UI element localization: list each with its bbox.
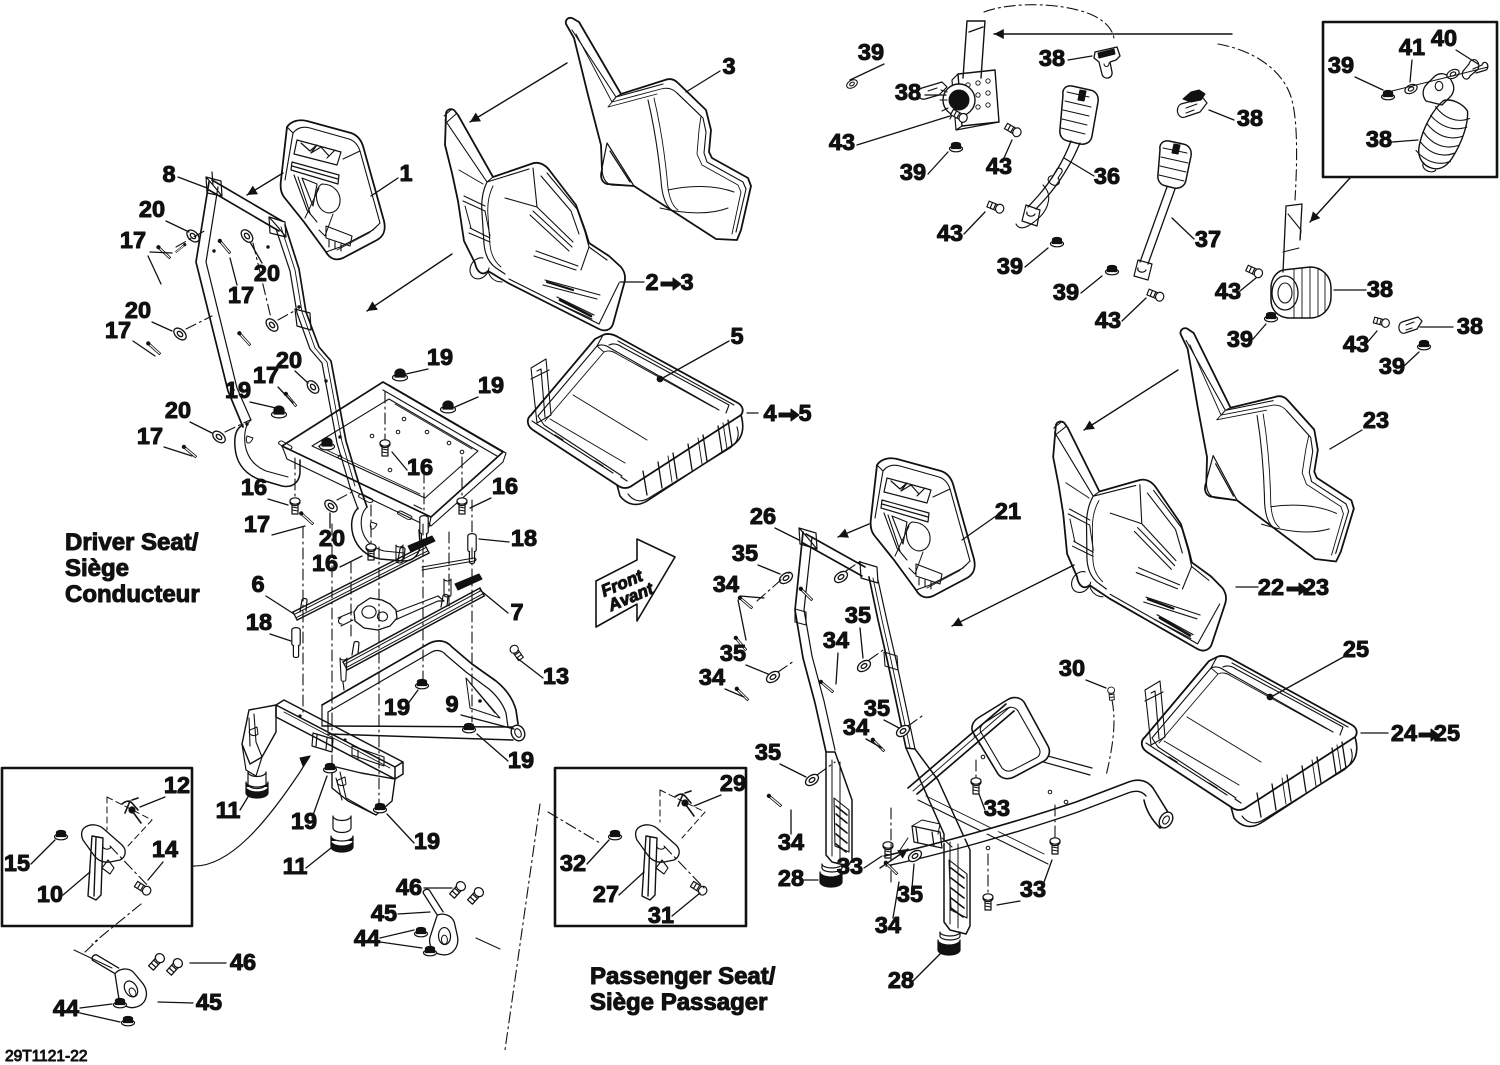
svg-text:3: 3 [680, 269, 693, 295]
svg-text:39: 39 [1328, 52, 1354, 78]
svg-text:35: 35 [755, 739, 781, 765]
svg-text:19: 19 [427, 344, 453, 370]
svg-text:32: 32 [560, 850, 586, 876]
svg-text:2: 2 [645, 269, 658, 295]
svg-text:17: 17 [228, 282, 254, 308]
svg-text:11: 11 [283, 853, 308, 879]
svg-text:17: 17 [253, 362, 279, 388]
svg-text:16: 16 [407, 454, 433, 480]
svg-text:35: 35 [845, 602, 871, 628]
svg-text:33: 33 [984, 795, 1010, 821]
svg-text:34: 34 [699, 664, 725, 690]
svg-text:45: 45 [371, 900, 397, 926]
svg-text:13: 13 [543, 663, 569, 689]
svg-text:19: 19 [414, 828, 440, 854]
svg-text:20: 20 [139, 196, 165, 222]
svg-text:44: 44 [53, 995, 79, 1021]
svg-text:20: 20 [276, 347, 302, 373]
svg-text:35: 35 [897, 881, 923, 907]
svg-text:34: 34 [713, 571, 739, 597]
svg-text:Conducteur: Conducteur [65, 581, 200, 608]
svg-text:41: 41 [1399, 34, 1425, 60]
svg-text:6: 6 [251, 571, 264, 597]
svg-text:17: 17 [244, 511, 270, 537]
svg-text:39: 39 [858, 39, 884, 65]
svg-text:37: 37 [1195, 226, 1221, 252]
svg-text:16: 16 [312, 550, 338, 576]
svg-text:1: 1 [399, 160, 412, 186]
svg-text:30: 30 [1059, 655, 1085, 681]
svg-text:43: 43 [1343, 331, 1369, 357]
svg-text:5: 5 [730, 323, 743, 349]
svg-text:38: 38 [1367, 276, 1393, 302]
svg-text:16: 16 [241, 474, 267, 500]
svg-text:27: 27 [593, 881, 619, 907]
svg-text:26: 26 [750, 503, 776, 529]
svg-text:9: 9 [445, 691, 458, 717]
svg-text:25: 25 [1434, 720, 1460, 746]
svg-text:39: 39 [900, 159, 926, 185]
svg-text:43: 43 [986, 153, 1012, 179]
svg-text:33: 33 [837, 853, 863, 879]
svg-text:38: 38 [1366, 126, 1392, 152]
svg-text:33: 33 [1020, 876, 1046, 902]
svg-text:38: 38 [1457, 313, 1483, 339]
svg-text:38: 38 [895, 79, 921, 105]
svg-text:31: 31 [648, 902, 674, 928]
svg-text:21: 21 [995, 498, 1021, 524]
svg-text:19: 19 [225, 377, 251, 403]
svg-text:18: 18 [246, 609, 272, 635]
svg-text:39: 39 [997, 253, 1023, 279]
svg-text:43: 43 [1215, 278, 1241, 304]
svg-text:16: 16 [492, 473, 518, 499]
svg-text:43: 43 [937, 220, 963, 246]
svg-text:19: 19 [384, 694, 410, 720]
svg-text:38: 38 [1237, 105, 1263, 131]
svg-text:44: 44 [354, 925, 380, 951]
svg-text:5: 5 [798, 400, 811, 426]
svg-text:39: 39 [1053, 279, 1079, 305]
svg-text:14: 14 [152, 836, 178, 862]
svg-text:34: 34 [875, 912, 901, 938]
svg-text:Driver Seat/: Driver Seat/ [65, 529, 199, 556]
svg-text:17: 17 [105, 317, 131, 343]
svg-text:24: 24 [1391, 720, 1417, 746]
svg-text:39: 39 [1227, 326, 1253, 352]
svg-text:23: 23 [1303, 574, 1329, 600]
svg-text:Passenger Seat/: Passenger Seat/ [590, 963, 776, 990]
svg-text:39: 39 [1379, 353, 1405, 379]
svg-text:45: 45 [196, 989, 222, 1015]
svg-text:29: 29 [720, 770, 746, 796]
svg-text:12: 12 [164, 772, 190, 798]
svg-text:38: 38 [1039, 45, 1065, 71]
svg-text:Siège Passager: Siège Passager [590, 989, 767, 1016]
svg-text:20: 20 [165, 397, 191, 423]
svg-text:17: 17 [120, 227, 146, 253]
svg-text:11: 11 [216, 797, 241, 823]
svg-text:17: 17 [137, 423, 163, 449]
svg-text:43: 43 [829, 129, 855, 155]
svg-text:Siège: Siège [65, 555, 129, 582]
svg-text:15: 15 [4, 850, 30, 876]
svg-text:18: 18 [511, 525, 537, 551]
svg-text:19: 19 [508, 747, 534, 773]
svg-text:43: 43 [1095, 307, 1121, 333]
svg-text:10: 10 [37, 881, 63, 907]
svg-text:7: 7 [510, 599, 523, 625]
svg-text:19: 19 [478, 372, 504, 398]
svg-text:28: 28 [778, 865, 804, 891]
svg-text:4: 4 [763, 400, 776, 426]
svg-text:36: 36 [1094, 163, 1120, 189]
svg-text:3: 3 [722, 53, 735, 79]
svg-text:46: 46 [230, 949, 256, 975]
svg-text:23: 23 [1363, 407, 1389, 433]
svg-text:8: 8 [162, 161, 175, 187]
svg-text:35: 35 [720, 640, 746, 666]
svg-text:34: 34 [843, 714, 869, 740]
svg-text:35: 35 [732, 540, 758, 566]
svg-text:34: 34 [823, 627, 849, 653]
svg-text:46: 46 [396, 874, 422, 900]
svg-text:28: 28 [888, 967, 914, 993]
svg-text:19: 19 [291, 808, 317, 834]
svg-text:40: 40 [1431, 25, 1457, 51]
svg-text:25: 25 [1343, 636, 1369, 662]
svg-text:29T1121-22: 29T1121-22 [5, 1048, 87, 1065]
svg-text:22: 22 [1258, 574, 1284, 600]
